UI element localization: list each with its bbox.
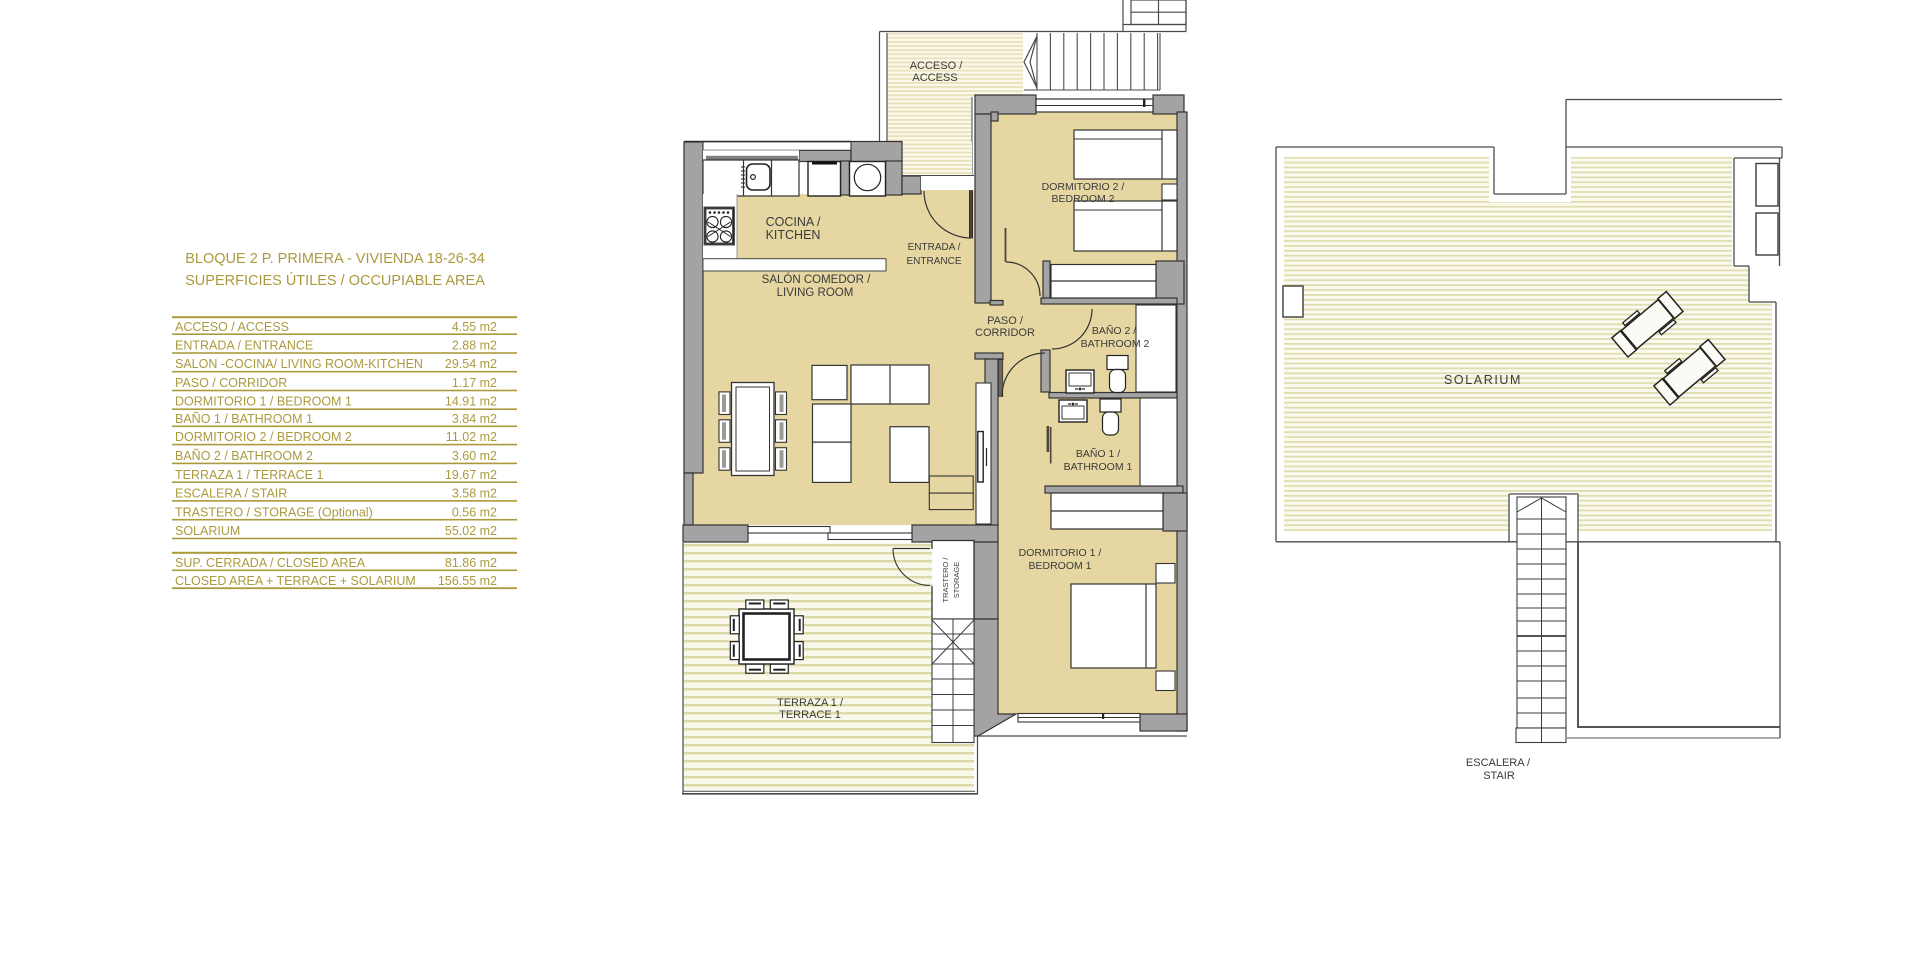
svg-text:3.84 m2: 3.84 m2 — [452, 412, 497, 426]
svg-text:STORAGE: STORAGE — [952, 562, 961, 599]
svg-text:ACCESO /: ACCESO / — [910, 60, 964, 72]
svg-text:COCINA /: COCINA / — [766, 215, 821, 229]
svg-text:ENTRADA / ENTRANCE: ENTRADA / ENTRANCE — [175, 339, 313, 353]
svg-text:0.56 m2: 0.56 m2 — [452, 505, 497, 519]
svg-text:TERRAZA 1 / TERRACE 1: TERRAZA 1 / TERRACE 1 — [175, 468, 323, 482]
svg-text:ACCESO / ACCESS: ACCESO / ACCESS — [175, 320, 289, 334]
svg-text:BAÑO 1 /: BAÑO 1 / — [1076, 447, 1120, 460]
svg-text:BEDROOM 1: BEDROOM 1 — [1028, 560, 1091, 572]
svg-text:29.54 m2: 29.54 m2 — [445, 357, 497, 371]
svg-text:TRASTERO / STORAGE (Optional): TRASTERO / STORAGE (Optional) — [175, 505, 373, 519]
svg-text:DORMITORIO 1 / BEDROOM 1: DORMITORIO 1 / BEDROOM 1 — [175, 395, 352, 409]
svg-text:BEDROOM 2: BEDROOM 2 — [1051, 193, 1114, 205]
svg-text:CORRIDOR: CORRIDOR — [975, 327, 1035, 339]
svg-text:BLOQUE 2 P. PRIMERA - VIVIEND: BLOQUE 2 P. PRIMERA - VIVIENDA 18-26-34 — [185, 251, 485, 267]
svg-text:2.88 m2: 2.88 m2 — [452, 339, 497, 353]
svg-text:BAÑO 2 /: BAÑO 2 / — [1092, 324, 1136, 337]
svg-text:SOLARIUM: SOLARIUM — [175, 524, 240, 538]
svg-text:ENTRANCE: ENTRANCE — [906, 256, 961, 267]
svg-text:DORMITORIO 2 /: DORMITORIO 2 / — [1042, 181, 1125, 193]
svg-text:SUPERFICIES ÚTILES / OCCUPIABL: SUPERFICIES ÚTILES / OCCUPIABLE AREA — [185, 272, 485, 289]
svg-text:BATHROOM 1: BATHROOM 1 — [1064, 461, 1133, 473]
svg-text:LIVING ROOM: LIVING ROOM — [777, 287, 854, 299]
svg-text:PASO / CORRIDOR: PASO / CORRIDOR — [175, 376, 287, 390]
svg-text:55.02 m2: 55.02 m2 — [445, 524, 497, 538]
svg-text:4.55 m2: 4.55 m2 — [452, 320, 497, 334]
svg-text:ESCALERA / STAIR: ESCALERA / STAIR — [175, 487, 287, 501]
svg-text:TRASTERO /: TRASTERO / — [941, 557, 950, 603]
svg-text:ACCESS: ACCESS — [912, 72, 957, 84]
svg-text:11.02 m2: 11.02 m2 — [446, 430, 497, 444]
svg-text:DORMITORIO 2 / BEDROOM 2: DORMITORIO 2 / BEDROOM 2 — [175, 430, 352, 444]
svg-text:156.55 m2: 156.55 m2 — [438, 574, 497, 588]
svg-text:BAÑO 2 / BATHROOM 2: BAÑO 2 / BATHROOM 2 — [175, 449, 313, 463]
svg-text:19.67 m2: 19.67 m2 — [445, 468, 497, 482]
svg-text:TERRAZA 1 /: TERRAZA 1 / — [777, 697, 844, 709]
svg-text:3.58 m2: 3.58 m2 — [452, 487, 497, 501]
svg-text:SALON -COCINA/ LIVING ROOM-KIT: SALON -COCINA/ LIVING ROOM-KITCHEN — [175, 357, 423, 371]
svg-text:STAIR: STAIR — [1483, 770, 1515, 782]
svg-text:BATHROOM 2: BATHROOM 2 — [1081, 338, 1150, 350]
svg-text:SUP. CERRADA / CLOSED AREA: SUP. CERRADA / CLOSED AREA — [175, 556, 366, 570]
svg-text:ENTRADA /: ENTRADA / — [908, 242, 961, 253]
svg-text:BAÑO 1 / BATHROOM 1: BAÑO 1 / BATHROOM 1 — [175, 412, 313, 426]
svg-text:TERRACE 1: TERRACE 1 — [779, 709, 841, 721]
svg-text:PASO /: PASO / — [987, 315, 1024, 327]
svg-text:KITCHEN: KITCHEN — [766, 228, 821, 242]
svg-text:ESCALERA /: ESCALERA / — [1466, 757, 1531, 769]
svg-text:SOLARIUM: SOLARIUM — [1444, 373, 1522, 387]
svg-text:SALÓN COMEDOR /: SALÓN COMEDOR / — [762, 273, 871, 286]
svg-text:81.86 m2: 81.86 m2 — [445, 556, 497, 570]
svg-text:3.60 m2: 3.60 m2 — [452, 449, 497, 463]
svg-text:CLOSED AREA + TERRACE + SOLARI: CLOSED AREA + TERRACE + SOLARIUM — [175, 574, 416, 588]
svg-text:DORMITORIO 1 /: DORMITORIO 1 / — [1019, 547, 1102, 559]
svg-text:14.91 m2: 14.91 m2 — [445, 395, 497, 409]
svg-text:1.17 m2: 1.17 m2 — [452, 376, 497, 390]
